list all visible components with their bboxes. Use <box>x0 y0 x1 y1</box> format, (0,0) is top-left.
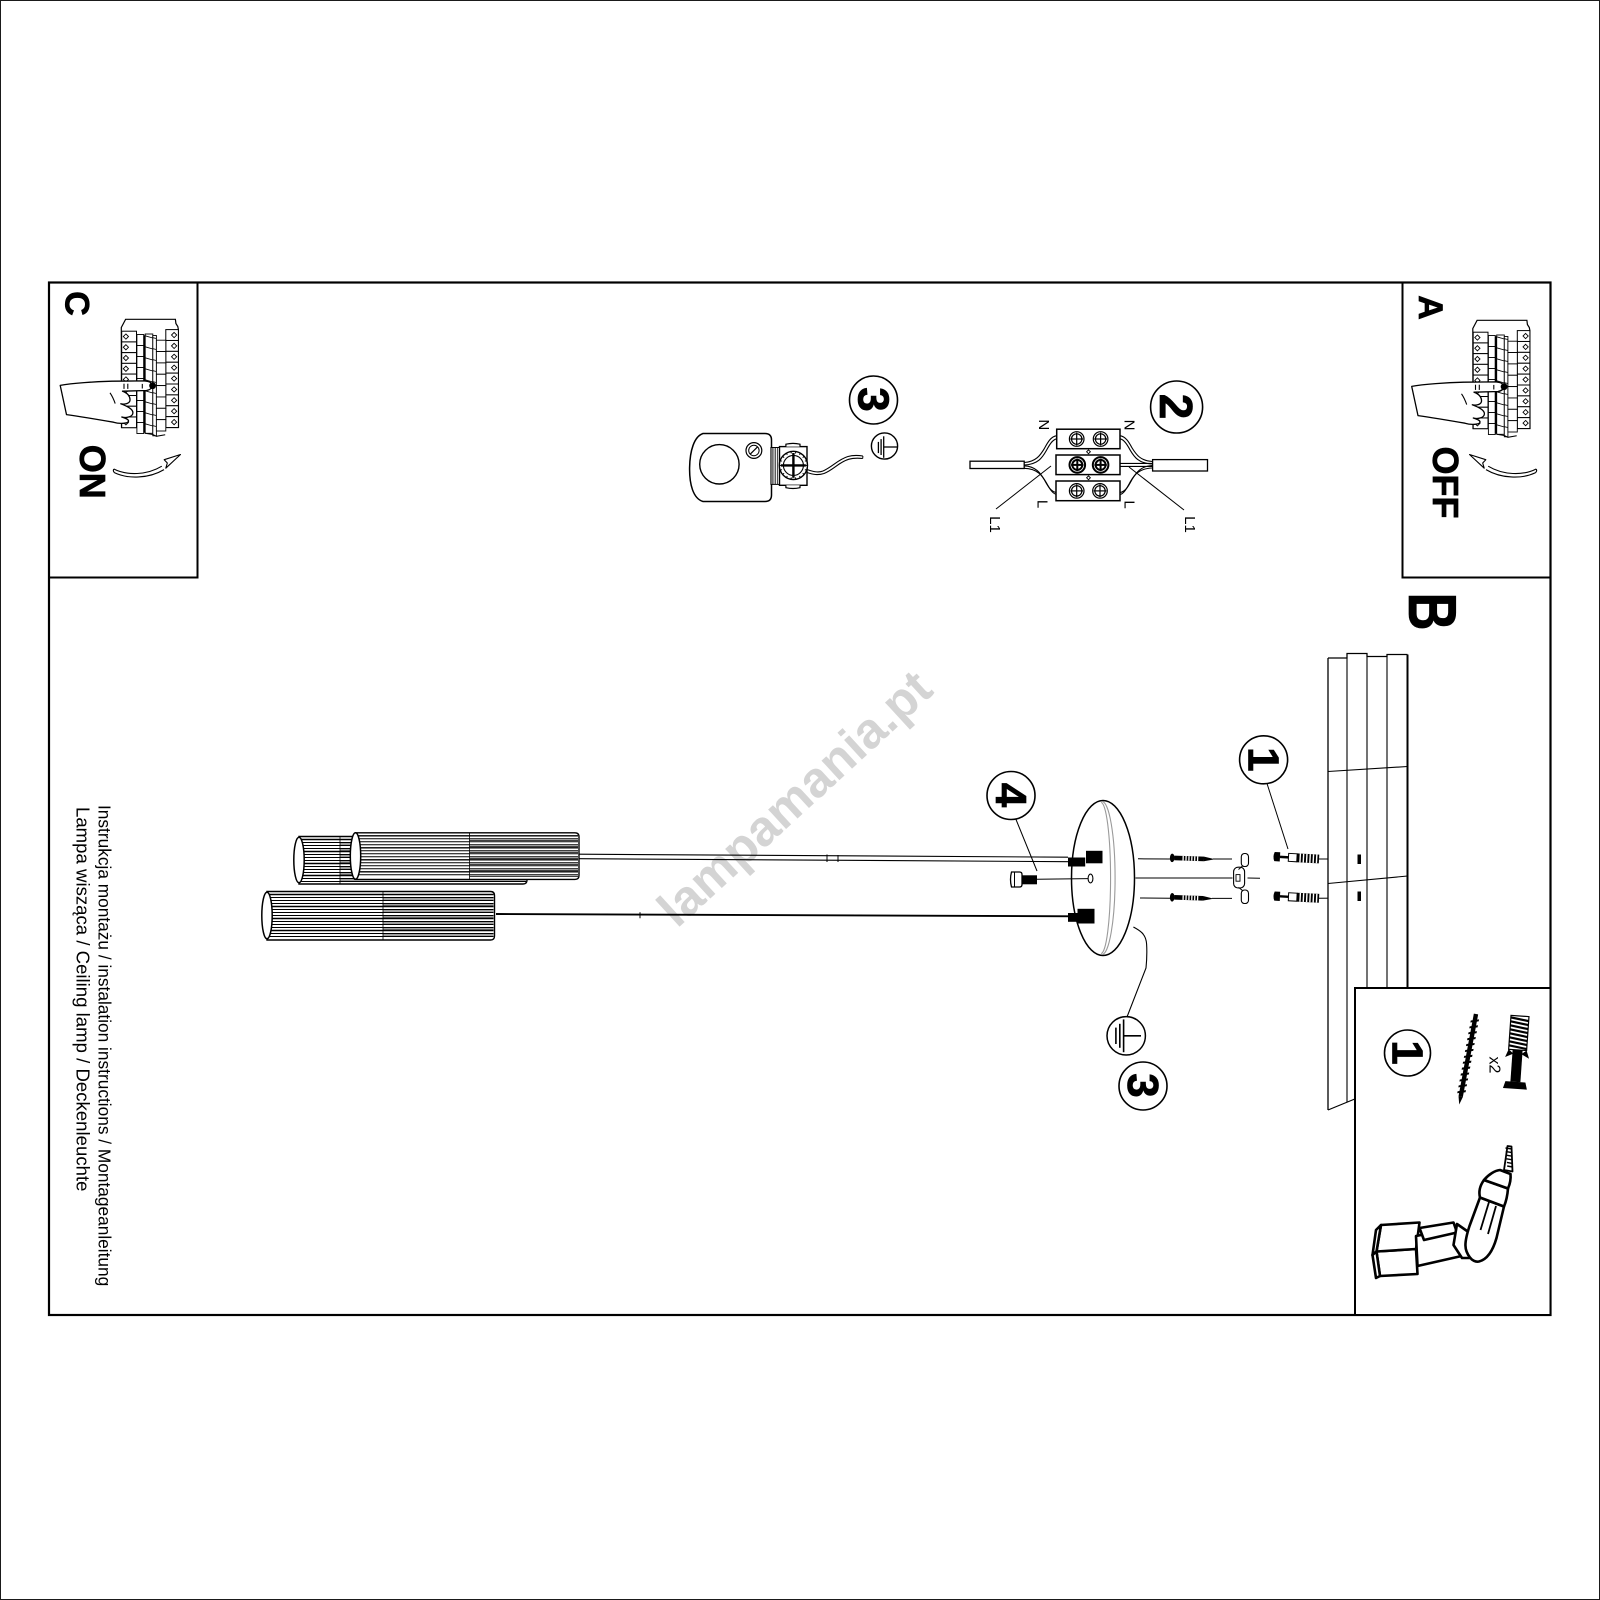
svg-text:L: L <box>1121 500 1138 508</box>
svg-text:C: C <box>58 291 96 316</box>
svg-text:2: 2 <box>1150 394 1202 420</box>
svg-text:L1: L1 <box>1181 516 1198 533</box>
svg-text:3: 3 <box>1118 1073 1167 1097</box>
svg-text:4: 4 <box>986 783 1035 808</box>
svg-text:Lampa wisząca / Ceiling lamp /: Lampa wisząca / Ceiling lamp / Deckenleu… <box>73 807 94 1191</box>
svg-text:OFF: OFF <box>1425 447 1466 519</box>
svg-text:ON: ON <box>72 445 113 499</box>
svg-text:N: N <box>1035 419 1052 430</box>
svg-text:Instrukcja montażu / instalati: Instrukcja montażu / instalation instruc… <box>95 805 115 1286</box>
svg-text:L: L <box>1033 500 1050 508</box>
svg-text:1: 1 <box>1383 1040 1432 1064</box>
svg-text:x2: x2 <box>1486 1057 1503 1074</box>
svg-text:1: 1 <box>1239 747 1288 771</box>
svg-text:3: 3 <box>849 387 898 411</box>
svg-text:N: N <box>1121 420 1138 431</box>
svg-text:L1: L1 <box>986 516 1003 533</box>
svg-text:A: A <box>1411 295 1449 320</box>
svg-text:B: B <box>1394 593 1470 631</box>
